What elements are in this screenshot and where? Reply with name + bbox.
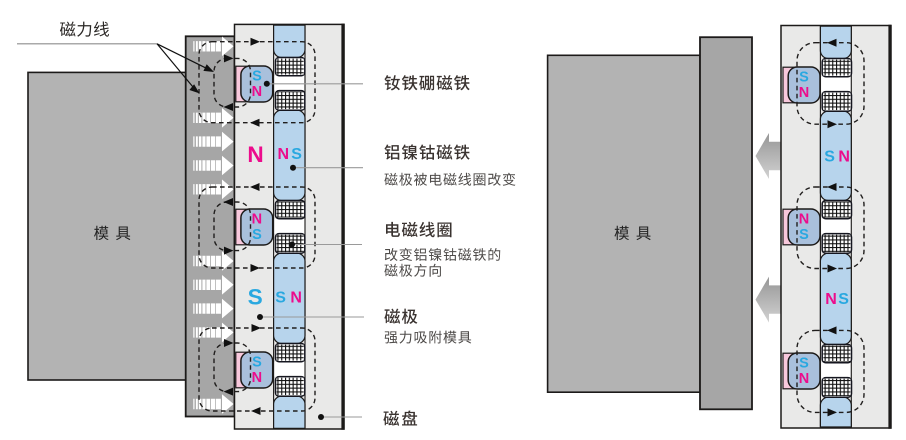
svg-text:N: N [247, 142, 263, 167]
svg-text:S: S [799, 356, 809, 372]
svg-text:S: S [252, 69, 262, 85]
svg-text:S: S [799, 70, 809, 86]
svg-text:S: S [824, 148, 835, 165]
svg-text:S: S [838, 291, 849, 308]
svg-text:N: N [252, 212, 262, 228]
svg-text:S: S [291, 146, 302, 163]
svg-text:N: N [799, 371, 809, 387]
svg-text:N: N [252, 84, 262, 100]
svg-text:S: S [252, 227, 262, 243]
svg-text:S: S [248, 284, 263, 309]
svg-text:N: N [278, 146, 290, 163]
svg-text:N: N [799, 85, 809, 101]
svg-text:N: N [799, 212, 809, 228]
svg-text:N: N [825, 291, 837, 308]
svg-text:N: N [290, 290, 302, 307]
svg-text:S: S [275, 290, 286, 307]
svg-text:N: N [252, 370, 262, 386]
svg-text:N: N [838, 148, 850, 165]
svg-text:S: S [252, 355, 262, 371]
svg-text:S: S [799, 227, 809, 243]
